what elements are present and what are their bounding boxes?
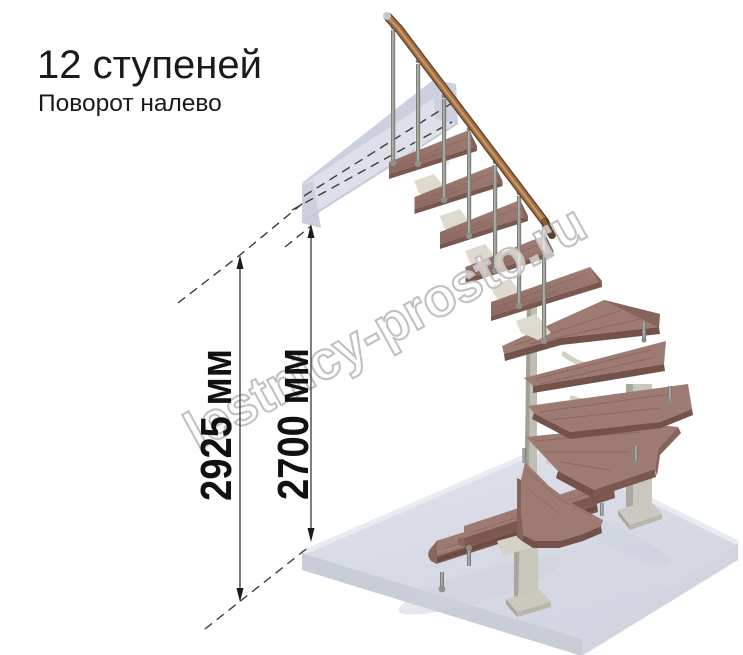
svg-text:2925 мм: 2925 мм <box>192 349 241 501</box>
svg-text:Поворот налево: Поворот налево <box>38 90 222 117</box>
svg-text:12 ступеней: 12 ступеней <box>37 43 262 87</box>
svg-text:2700 мм: 2700 мм <box>269 348 318 500</box>
